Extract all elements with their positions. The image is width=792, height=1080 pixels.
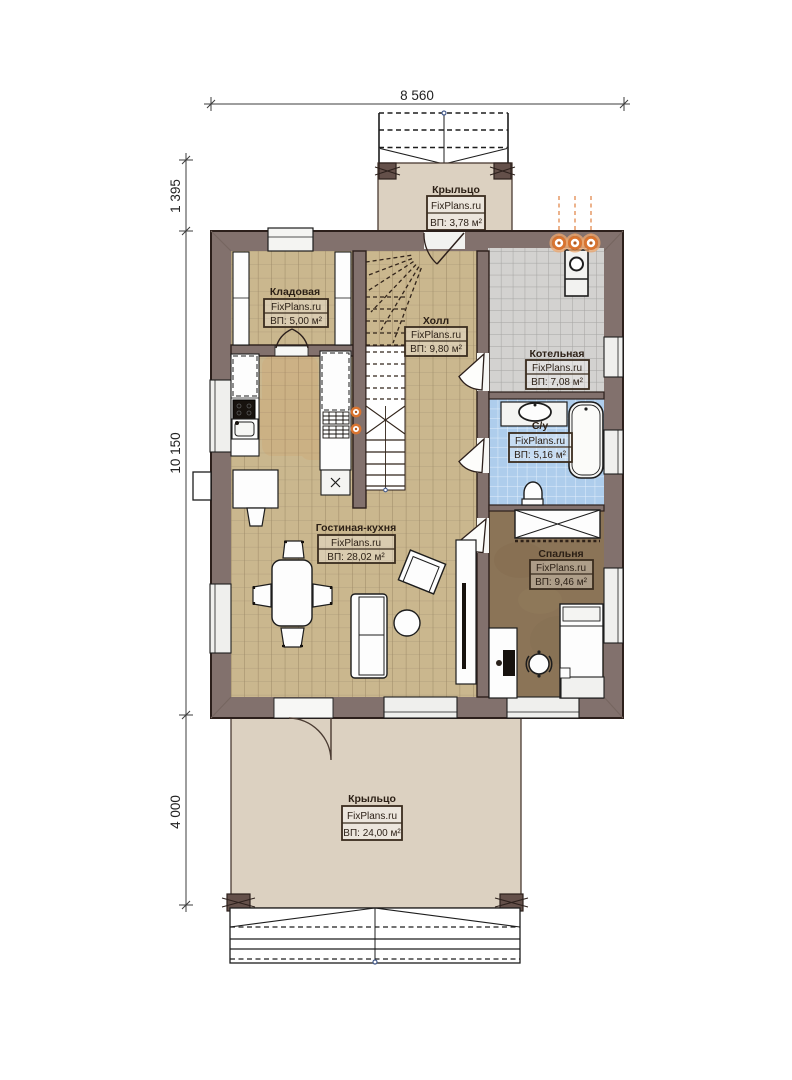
svg-text:FixPlans.ru: FixPlans.ru: [331, 538, 381, 549]
svg-text:FixPlans.ru: FixPlans.ru: [536, 563, 586, 574]
svg-text:FixPlans.ru: FixPlans.ru: [271, 302, 321, 313]
svg-text:С/у: С/у: [532, 420, 549, 432]
svg-text:Крыльцо: Крыльцо: [432, 184, 480, 196]
svg-text:FixPlans.ru: FixPlans.ru: [411, 330, 461, 341]
svg-text:Кладовая: Кладовая: [270, 286, 320, 298]
svg-text:ВП: 24,00 м²: ВП: 24,00 м²: [343, 828, 401, 839]
svg-text:Гостиная-кухня: Гостиная-кухня: [316, 522, 396, 534]
svg-text:ВП: 5,00 м²: ВП: 5,00 м²: [270, 316, 323, 327]
svg-text:ВП: 3,78 м²: ВП: 3,78 м²: [430, 218, 483, 229]
svg-text:Котельная: Котельная: [530, 348, 585, 360]
svg-text:Спальня: Спальня: [538, 548, 583, 560]
svg-text:ВП: 28,02 м²: ВП: 28,02 м²: [327, 552, 385, 563]
svg-text:10 150: 10 150: [168, 432, 183, 473]
svg-text:FixPlans.ru: FixPlans.ru: [347, 811, 397, 822]
svg-text:ВП: 9,80 м²: ВП: 9,80 м²: [410, 344, 463, 355]
svg-text:FixPlans.ru: FixPlans.ru: [532, 363, 582, 374]
svg-text:1 395: 1 395: [168, 179, 183, 213]
svg-text:ВП: 7,08 м²: ВП: 7,08 м²: [531, 377, 584, 388]
svg-text:FixPlans.ru: FixPlans.ru: [431, 201, 481, 212]
svg-text:ВП: 5,16 м²: ВП: 5,16 м²: [514, 450, 567, 461]
svg-text:ВП: 9,46 м²: ВП: 9,46 м²: [535, 577, 588, 588]
svg-text:4 000: 4 000: [168, 795, 183, 829]
svg-text:Крыльцо: Крыльцо: [348, 793, 396, 805]
svg-text:Холл: Холл: [423, 315, 449, 327]
svg-text:8 560: 8 560: [400, 88, 434, 103]
svg-text:FixPlans.ru: FixPlans.ru: [515, 436, 565, 447]
